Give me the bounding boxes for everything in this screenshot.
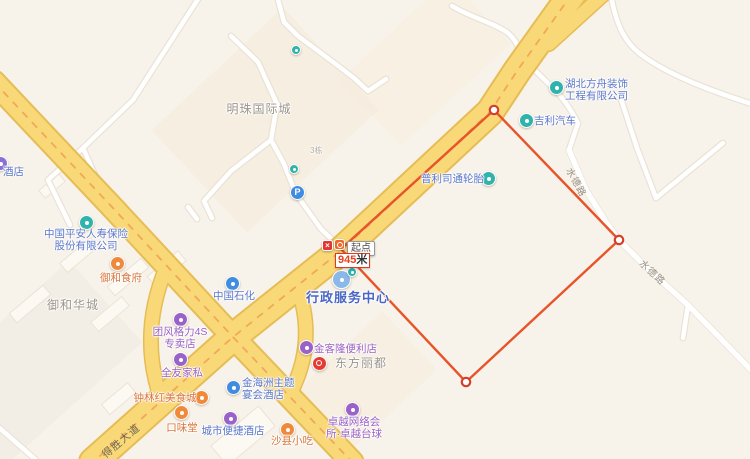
yuhe-restaurant-icon[interactable] <box>110 256 125 271</box>
measure-vertex <box>462 378 470 386</box>
gree-icon-glyph <box>179 318 183 322</box>
poi-label-government-center[interactable]: 行政服务中心 <box>306 291 390 306</box>
building-number-label: 3栋 <box>310 147 322 156</box>
kouweitang-icon-glyph <box>180 411 184 415</box>
shaxian-icon-glyph <box>286 428 290 432</box>
dongfang-lidu-icon[interactable] <box>312 356 327 371</box>
jinhaizhou-hotel-icon[interactable] <box>226 380 241 395</box>
city-comfort-icon-glyph <box>229 417 233 421</box>
geely-icon-glyph <box>525 119 529 123</box>
poi-label-hotel[interactable]: 酒店 <box>3 167 24 179</box>
poi-label-bridgestone[interactable]: 普利司通轮胎 <box>421 174 484 186</box>
entrance-icon-glyph <box>351 271 354 274</box>
distance-unit: 米 <box>356 254 367 266</box>
poi-label-dongfang-lidu[interactable]: 东方丽都 <box>335 357 387 370</box>
jinkelong-store-icon[interactable] <box>299 340 314 355</box>
start-marker-glyph <box>337 242 343 248</box>
yuhe-icon-glyph <box>116 262 120 266</box>
poi-label-gree[interactable]: 团风格力4S专卖店 <box>153 327 208 351</box>
measure-distance-label: 945米 <box>335 253 370 268</box>
kouweitang-icon[interactable] <box>174 405 189 420</box>
entrance-icon[interactable] <box>289 164 299 174</box>
poi-label-mingzhu[interactable]: 明珠国际城 <box>226 103 291 116</box>
red-poi-marker[interactable]: × <box>322 240 333 251</box>
geely-auto-icon[interactable] <box>519 113 534 128</box>
jinkelong-icon-glyph <box>305 346 309 350</box>
entrance-icon-glyph <box>295 49 298 52</box>
poi-label-zhuoyue[interactable]: 卓越网络会所·卓越台球 <box>326 417 382 441</box>
entrance-icon[interactable] <box>291 45 301 55</box>
distance-value: 945 <box>338 254 356 266</box>
measure-vertex <box>490 106 498 114</box>
gree-store-icon[interactable] <box>173 312 188 327</box>
map-canvas[interactable]: 得胜大道 水德路 水德路 P × 起点 945米 酒店 中国平安人寿保险股份有限… <box>0 0 750 459</box>
fangzhou-icon-glyph <box>555 86 559 90</box>
measure-start-marker[interactable] <box>334 239 345 250</box>
sinopec-icon[interactable] <box>225 276 240 291</box>
poi-label-yuhe-shifu[interactable]: 御和食府 <box>100 273 142 285</box>
pingan-icon-glyph <box>85 221 89 225</box>
poi-label-quanyou[interactable]: 全友家私 <box>161 368 203 380</box>
poi-label-shaxian[interactable]: 沙县小吃 <box>271 436 313 448</box>
dongfang-icon-glyph <box>316 360 322 366</box>
poi-label-sinopec[interactable]: 中国石化 <box>213 291 255 303</box>
government-icon-glyph <box>340 278 344 282</box>
fangzhou-company-icon[interactable] <box>549 80 564 95</box>
zhuoyue-club-icon[interactable] <box>345 402 360 417</box>
poi-label-geely[interactable]: 吉利汽车 <box>534 116 576 128</box>
poi-label-jinhaizhou[interactable]: 金海洲主题宴会酒店 <box>242 378 295 402</box>
quanyou-furniture-icon[interactable] <box>173 352 188 367</box>
zhuoyue-icon-glyph <box>351 408 355 412</box>
poi-label-kouweitang[interactable]: 口味堂 <box>166 423 198 435</box>
sinopec-icon-glyph <box>231 282 235 286</box>
zhonglinhong-icon-glyph <box>200 396 204 400</box>
quanyou-icon-glyph <box>179 358 183 362</box>
city-comfort-inn-icon[interactable] <box>223 411 238 426</box>
parking-letter: P <box>291 186 304 199</box>
entrance-icon[interactable] <box>347 267 357 277</box>
entrance-icon-glyph <box>293 168 296 171</box>
poi-label-yuhe-huacheng[interactable]: 御和华城 <box>47 299 99 312</box>
poi-label-pingan[interactable]: 中国平安人寿保险股份有限公司 <box>44 229 128 253</box>
poi-label-jinkelong[interactable]: 金客隆便利店 <box>314 344 377 356</box>
poi-label-zhonglinhong[interactable]: 钟林红美食城 <box>134 393 197 405</box>
hotel-icon-glyph <box>0 162 3 166</box>
poi-label-city-comfort-inn[interactable]: 城市便捷酒店 <box>202 426 265 438</box>
jinhaizhou-icon-glyph <box>232 386 236 390</box>
bridgestone-icon-glyph <box>487 177 491 181</box>
poi-label-fangzhou[interactable]: 湖北方舟装饰工程有限公司 <box>565 79 628 103</box>
measure-vertex <box>615 236 623 244</box>
parking-icon[interactable]: P <box>290 185 305 200</box>
